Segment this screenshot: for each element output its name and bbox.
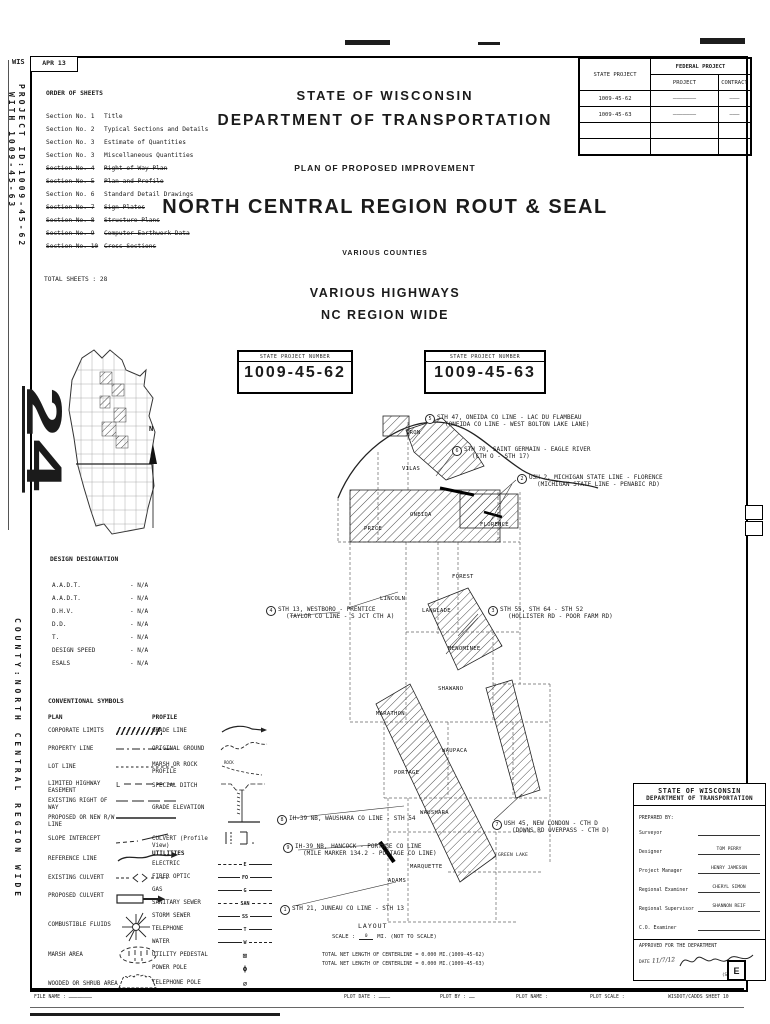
sheet-list-item-struck: Section No. 5Plan and Profile (46, 178, 164, 185)
gas-line-symbol: G (218, 887, 272, 894)
county-label: IRON (406, 430, 420, 436)
revision-letter-box: E (727, 960, 746, 981)
project-number-box: STATE PROJECT NUMBER 1009-45-62 (237, 350, 353, 394)
scale-row: SCALE : 0 MI. (NOT TO SCALE) (332, 934, 437, 940)
county-label: MARQUETTE (410, 864, 443, 870)
prepared-row: DesignerTOM PERRY (639, 847, 760, 855)
county-label: ONEIDA (410, 512, 432, 518)
approval-date-value: 11/7/12 (652, 956, 676, 965)
profile-column-title: PROFILE (152, 714, 177, 721)
sheet-list-item-struck: Section No. 7Sign Plates (46, 204, 145, 211)
county-label: MARATHON (376, 711, 405, 717)
sanitary-sewer-line-symbol: SAN (218, 900, 272, 907)
contract-col-header: CONTRACT (719, 75, 752, 91)
header-region: NC REGION WIDE (150, 308, 620, 322)
legend-label: WATER (152, 939, 169, 945)
water-line-symbol: W (218, 939, 272, 946)
layout-title: LAYOUT (358, 922, 387, 930)
file-name-note: FILE NAME : …………………… (34, 995, 92, 1000)
stamp-wis: WIS (12, 58, 25, 66)
prepared-box-state: STATE OF WISCONSIN (634, 787, 765, 795)
scale-note: MI. (NOT TO SCALE) (377, 934, 437, 940)
legend-label: ELECTRIC (152, 861, 180, 867)
map-callout: 7 USH 45, NEW LONDON - CTH D(DOWNS RD OV… (492, 820, 610, 834)
telephone-pole-icon: ∅ (218, 980, 272, 987)
original-ground-symbol (220, 740, 268, 754)
county-label: GREEN LAKE (498, 852, 528, 858)
scan-artifact (30, 1013, 280, 1016)
legend-label: EXISTING CULVERT (48, 875, 118, 882)
scale-label: SCALE : (332, 934, 355, 940)
project-col-header: PROJECT (651, 75, 719, 91)
proposed-row-line-symbol (116, 813, 178, 823)
margin-project-id-2: WITH 1009-45-63 (7, 92, 16, 209)
prepared-box-dept: DEPARTMENT OF TRANSPORTATION (634, 795, 765, 802)
design-row: DESIGN SPEEDN/A (52, 647, 148, 654)
map-callout: 2 USH 2, MICHIGAN STATE LINE - FLORENCE(… (517, 474, 663, 488)
design-row: A.A.D.T.N/A (52, 582, 148, 589)
plot-date-note: PLOT DATE : ………… (344, 995, 390, 1000)
culvert-profile-symbol (220, 830, 268, 846)
legend-label: SANITARY SEWER (152, 900, 201, 906)
circled-number: 8 (277, 815, 287, 825)
footer-rule (30, 988, 744, 990)
legend-label: CORPORATE LIMITS (48, 728, 118, 735)
rock-profile-symbol: ROCK (220, 758, 268, 776)
prepared-row: Project ManagerHENRY JAMESON (639, 866, 760, 874)
plot-by-note: PLOT BY : …… (440, 995, 475, 1000)
map-callout: 5 STH 47, ONEIDA CO LINE - LAC DU FLAMBE… (425, 414, 590, 428)
table-row: 1009-45-63—————————— (579, 107, 751, 123)
match-tick (745, 505, 763, 520)
legend-label: TELEPHONE POLE (152, 980, 201, 986)
utility-pedestal-icon: ⊠ (218, 952, 272, 959)
legend-label: GAS (152, 887, 162, 893)
sheet-reference: WISDOT/CADDS SHEET 10 (668, 995, 729, 1000)
county-label: FOREST (452, 574, 474, 580)
map-callout: 4 STH 13, WESTBORO - PRENTICE(TAYLOR CO … (266, 606, 394, 620)
county-label: FLORENCE (480, 522, 509, 528)
sheet-list-item: Section No. 1Title (46, 113, 123, 120)
legend-label: GRADE LINE (152, 728, 218, 735)
legend-label: PROPOSED CULVERT (48, 893, 118, 900)
margin-county-note: COUNTY:NORTH CENTRAL REGION WIDE (13, 618, 22, 900)
header-counties: VARIOUS COUNTIES (150, 250, 620, 257)
circled-number: 9 (283, 843, 293, 853)
header-plan-line: PLAN OF PROPOSED IMPROVEMENT (150, 163, 620, 173)
legend-label: TELEPHONE (152, 926, 183, 932)
legend-label: COMBUSTIBLE FLUIDS (48, 922, 118, 929)
order-of-sheets-title: ORDER OF SHEETS (46, 90, 103, 97)
circled-number: 7 (492, 820, 502, 830)
map-callout: 8 IH-39 NB, WAUSHARA CO LINE - STH 54 (277, 815, 415, 825)
county-label: LINCOLN (380, 596, 405, 602)
map-callout: 9 IH-39 NB, HANCOCK - PORTAGE CO LINE(MI… (283, 843, 437, 857)
plot-scale-note: PLOT SCALE : (590, 995, 625, 1000)
grade-line-symbol (220, 722, 268, 736)
legend-label: MARSH AREA (48, 952, 118, 959)
county-label: MENOMINEE (448, 646, 481, 652)
header-department: DEPARTMENT OF TRANSPORTATION (150, 112, 620, 130)
circled-number: 6 (452, 446, 462, 456)
utilities-title: UTILITIES (152, 850, 185, 857)
scan-artifact (345, 40, 390, 45)
legend-label: WOODED OR SHRUB AREA (48, 981, 118, 988)
project-number-box: STATE PROJECT NUMBER 1009-45-63 (424, 350, 546, 394)
design-designation-title: DESIGN DESIGNATION (50, 556, 118, 563)
legend-label: LIMITED HIGHWAY EASEMENT (48, 781, 118, 794)
project-id-table: STATE PROJECT FEDERAL PROJECT PROJECT CO… (578, 57, 752, 156)
north-label: N (149, 425, 153, 433)
sheet-list-item: Section No. 3Estimate of Quantities (46, 139, 186, 146)
legend-label: SLOPE INTERCEPT (48, 836, 118, 843)
svg-text:ROCK: ROCK (224, 760, 234, 765)
legend-label: POWER POLE (152, 965, 187, 971)
divider (634, 805, 765, 806)
legend-label: REFERENCE LINE (48, 856, 118, 863)
storm-sewer-line-symbol: SS (218, 913, 272, 920)
grade-elevation-symbol (220, 788, 268, 830)
map-callout: 1 STH 21, JUNEAU CO LINE - STH 13 (280, 905, 404, 915)
circled-number: 3 (488, 606, 498, 616)
county-label: WAUSHARA (420, 810, 449, 816)
circled-number: 2 (517, 474, 527, 484)
legend-label: UTILITY PEDESTAL (152, 952, 208, 958)
table-row: 1009-45-62—————————— (579, 91, 751, 107)
legend-label: LOT LINE (48, 764, 118, 771)
approved-label: APPROVED FOR THE DEPARTMENT (639, 944, 717, 949)
approval-date-label: DATE (639, 960, 650, 965)
table-row (579, 123, 751, 139)
scan-artifact (478, 42, 500, 45)
scan-artifact (700, 38, 745, 44)
design-row: A.A.D.T.N/A (52, 595, 148, 602)
prepared-row: Regional SupervisorSHANNON REIF (639, 904, 760, 912)
county-label: ADAMS (388, 878, 406, 884)
legend-label: SPECIAL DITCH (152, 783, 218, 790)
prepared-by-box: STATE OF WISCONSIN DEPARTMENT OF TRANSPO… (633, 783, 766, 981)
legend-label: GRADE ELEVATION (152, 805, 218, 812)
arrow-head (149, 444, 157, 464)
electric-line-symbol: E (218, 861, 272, 868)
bottom-rule (30, 1007, 744, 1008)
county-label: SHAWANO (438, 686, 463, 692)
wisconsin-state-map (56, 336, 156, 554)
plan-column-title: PLAN (48, 714, 62, 721)
stamp-date: APR 13 (31, 57, 77, 70)
conventional-symbols-title: CONVENTIONAL SYMBOLS (48, 698, 124, 705)
circled-number: 4 (266, 606, 276, 616)
federal-project-header: FEDERAL PROJECT (651, 58, 752, 75)
margin-project-id: PROJECT ID:1009-45-62 (17, 84, 26, 248)
stamp-date-box: APR 13 (30, 56, 78, 72)
plot-name-note: PLOT NAME : (516, 995, 548, 1000)
match-tick (745, 521, 763, 536)
legend-label: FIBER OPTIC (152, 874, 190, 880)
county-label: PRICE (364, 526, 382, 532)
total-sheets: TOTAL SHEETS : 28 (44, 276, 107, 283)
total-length-2: TOTAL NET LENGTH OF CENTERLINE = 0.000 M… (322, 961, 485, 967)
header-highways: VARIOUS HIGHWAYS (150, 286, 620, 300)
page-title: NORTH CENTRAL REGION ROUT & SEAL (150, 196, 620, 219)
svg-text:L: L (116, 781, 120, 789)
sheet-list-item-struck: Section No. 10Cross Sections (46, 243, 156, 250)
sheet-list-item-struck: Section No. 9Computer Earthwork Data (46, 230, 190, 237)
legend-label: PROPERTY LINE (48, 746, 118, 753)
legend-label: EXISTING RIGHT OF WAY (48, 798, 118, 811)
state-project-header: STATE PROJECT (579, 58, 651, 91)
table-row (579, 139, 751, 156)
map-callout: 3 STH 55, STH 64 - STH 52(HOLLISTER RD -… (488, 606, 613, 620)
county-label: VILAS (402, 466, 420, 472)
sheet-list-item-struck: Section No. 8Structure Plans (46, 217, 160, 224)
county-label: PORTAGE (394, 770, 419, 776)
fiber-optic-line-symbol: FO (218, 874, 272, 881)
circled-number: 1 (280, 905, 290, 915)
design-row: ESALSN/A (52, 660, 148, 667)
circled-number: 5 (425, 414, 435, 424)
legend-label: MARSH OR ROCK PROFILE (152, 762, 218, 775)
divider (634, 939, 765, 940)
map-callout: 6 STH 70, SAINT GERMAIN - EAGLE RIVER(CT… (452, 446, 590, 460)
north-arrow-icon: N (144, 420, 162, 532)
design-row: D.D.N/A (52, 621, 148, 628)
prepared-row: Regional ExaminerCHERYL SIMON (639, 885, 760, 893)
county-label: WAUPACA (442, 748, 468, 754)
county-label: LANGLADE (422, 608, 451, 614)
legend-label: ORIGINAL GROUND (152, 746, 218, 753)
total-length-1: TOTAL NET LENGTH OF CENTERLINE = 0.000 M… (322, 952, 485, 958)
telephone-line-symbol: T (218, 926, 272, 933)
header-state: STATE OF WISCONSIN (150, 88, 620, 103)
design-row: D.H.V.N/A (52, 608, 148, 615)
prepared-row: Surveyor (639, 828, 760, 836)
prepared-by-label: PREPARED BY: (639, 816, 674, 821)
legend-label: CULVERT (Profile View) (152, 836, 218, 849)
power-pole-icon: ϕ (218, 965, 272, 972)
design-row: T.N/A (52, 634, 148, 641)
title-sheet: WIS APR 13 PROJECT ID:1009-45-62 WITH 10… (0, 0, 770, 1024)
legend-label: STORM SEWER (152, 913, 190, 919)
scale-bar: 0 (359, 934, 373, 940)
prepared-row: C.O. Examiner (639, 923, 760, 931)
sheet-list-item: Section No. 3Miscellaneous Quantities (46, 152, 193, 159)
legend-label: PROPOSED OR NEW R/W LINE (48, 815, 118, 828)
